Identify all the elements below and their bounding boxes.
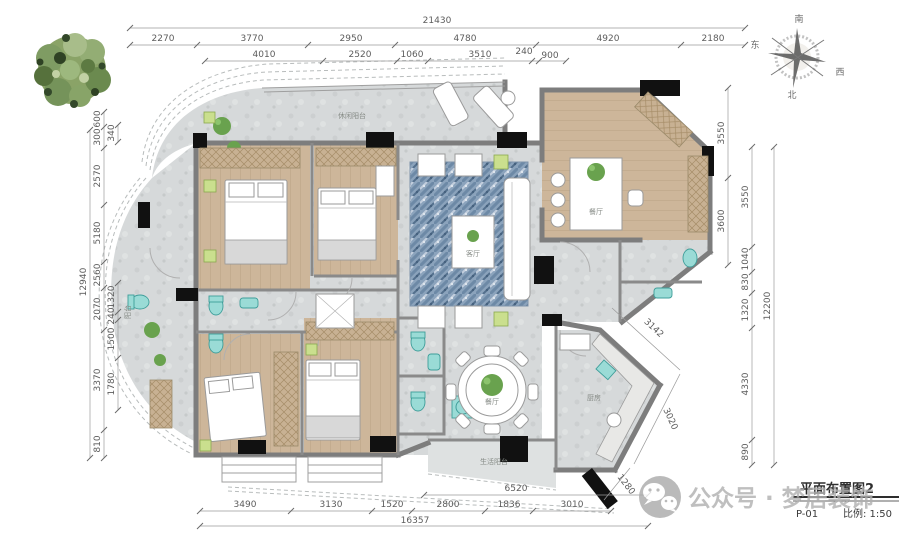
dim: 2570 — [93, 164, 103, 187]
dim: 3600 — [717, 209, 727, 232]
dim: 3130 — [320, 500, 343, 510]
side-balcony-label: 阳台 — [123, 305, 132, 319]
living-room-furniture: 客厅 — [410, 154, 530, 328]
dim: 3550 — [717, 121, 727, 144]
dim: 4780 — [454, 34, 477, 44]
compass-top-label: 南 — [794, 13, 803, 25]
tree-icon — [34, 33, 111, 108]
dim: 340 — [107, 124, 117, 141]
dim: 240 — [107, 307, 117, 324]
sofa — [504, 178, 530, 300]
dim: 5180 — [93, 221, 103, 244]
dim-left-total: 12940 — [79, 267, 89, 296]
dim: 1060 — [401, 50, 424, 60]
dim: 890 — [741, 443, 751, 460]
dining-room-label: 餐厅 — [589, 207, 603, 216]
dim: 1520 — [381, 500, 404, 510]
compass-right-label: 西 — [835, 67, 844, 78]
dim: 2180 — [702, 34, 725, 44]
dim: 3770 — [241, 34, 264, 44]
dim: 1836 — [498, 500, 521, 510]
dim: 1280 — [615, 473, 637, 497]
dim: 1500 — [107, 327, 117, 350]
compass-bottom-label: 北 — [787, 90, 796, 101]
dim: 2560 — [93, 263, 103, 286]
compass-left-label: 东 — [750, 39, 759, 51]
dim: 4330 — [741, 372, 751, 395]
dim: 3010 — [561, 500, 584, 510]
dim-bottom-span: 6520 — [505, 484, 528, 494]
wechat-icon — [639, 476, 681, 518]
dim: 810 — [93, 435, 103, 452]
dim-top-total: 21430 — [423, 16, 452, 26]
dim: 1780 — [107, 372, 117, 395]
dim: 1040 — [741, 247, 751, 270]
compass-icon: 南 北 西 东 — [750, 13, 844, 101]
dim: 3550 — [741, 185, 751, 208]
dim: 240 — [515, 47, 532, 57]
dim: 3142 — [642, 317, 666, 340]
dim: 2070 — [93, 297, 103, 320]
dining-floor — [542, 90, 710, 240]
dim: 3510 — [469, 50, 492, 60]
dim: 3490 — [234, 500, 257, 510]
dim-right-total: 12200 — [763, 291, 773, 320]
dim: 3020 — [660, 407, 679, 432]
watermark-text: 公众号 · 梦居装饰 — [688, 485, 874, 512]
dim: 1320 — [741, 298, 751, 321]
dim: 4010 — [253, 50, 276, 60]
dim: 2270 — [152, 34, 175, 44]
round-dining-label: 餐厅 — [485, 397, 499, 406]
dim: 830 — [741, 273, 751, 290]
dim: 4920 — [597, 34, 620, 44]
dim: 2800 — [437, 500, 460, 510]
dim: 900 — [541, 51, 558, 61]
service-balcony-label: 生活阳台 — [480, 457, 508, 466]
dim: 3370 — [93, 368, 103, 391]
floorplan-sheet: 南 北 西 东 — [0, 0, 899, 535]
living-room-label: 客厅 — [466, 249, 480, 258]
kitchen-label: 厨房 — [587, 393, 601, 402]
dim: 300 — [93, 128, 103, 145]
dim: 1320 — [107, 285, 117, 308]
dim: 2520 — [349, 50, 372, 60]
dim-bottom-total: 16357 — [401, 516, 430, 526]
dim: 600 — [93, 110, 103, 127]
round-dining-table: 餐厅 — [446, 346, 538, 434]
dim: 2950 — [340, 34, 363, 44]
terrace-label: 休闲阳台 — [338, 111, 366, 120]
